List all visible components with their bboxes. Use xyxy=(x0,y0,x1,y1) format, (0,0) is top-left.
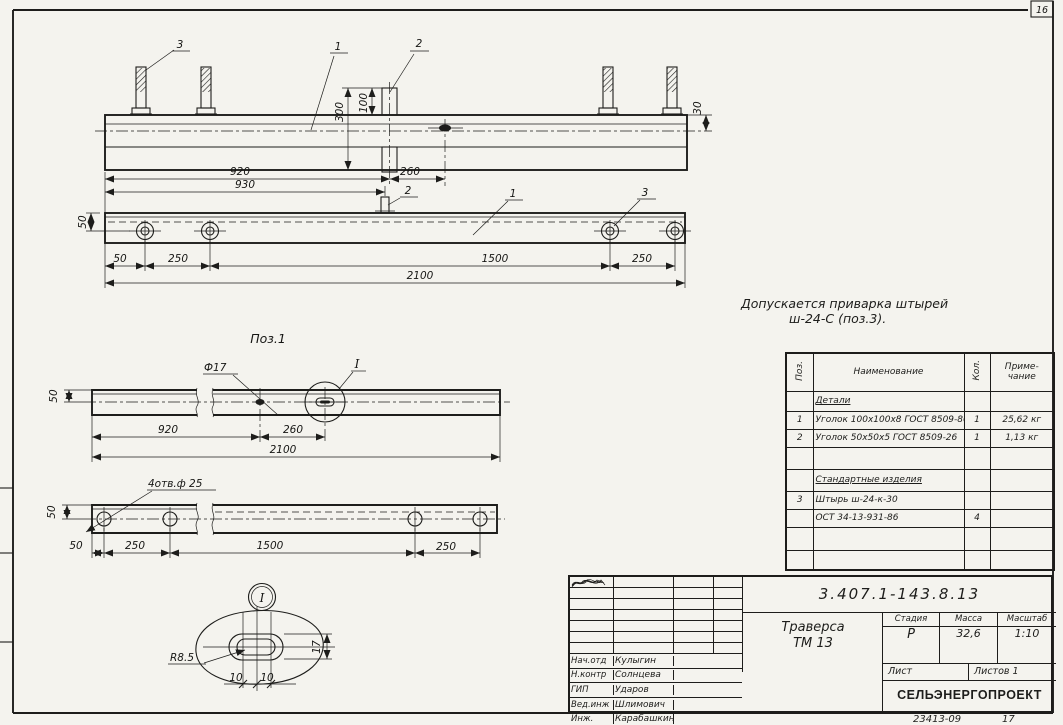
sig-role: ГИП xyxy=(570,685,614,695)
col-name: Наименование xyxy=(813,353,964,391)
sheet-row: Лист Листов 1 xyxy=(882,664,1056,681)
dim-10-right: 10 xyxy=(260,672,274,684)
part-note xyxy=(990,491,1054,509)
doc-number: 3.407.1-143.8.13 xyxy=(742,577,1056,613)
stage-label: Стадия xyxy=(883,612,940,627)
callout-pin: 3 xyxy=(177,39,184,51)
sig-name: Ударов xyxy=(614,685,674,695)
sheets-label: Листов 1 xyxy=(969,664,1019,680)
detail-i-view: I R8.5 17 10 10 xyxy=(168,584,335,692)
part-qty: 1 xyxy=(964,411,990,429)
col-pos: Поз. xyxy=(786,353,813,391)
dim-920: 920 xyxy=(230,166,250,178)
drawing-title: Траверса ТМ 13 xyxy=(742,612,883,672)
footer-sheet-number: 17 xyxy=(1002,714,1015,725)
sig-name: Карабашкин xyxy=(614,714,674,724)
sheet-corner-number: 16 xyxy=(1036,5,1048,16)
pin-1 xyxy=(130,67,152,114)
drawing-sheet: 16 xyxy=(0,0,1063,725)
dim-2100: 2100 xyxy=(407,270,434,282)
dim-250-right: 250 xyxy=(436,541,456,553)
holes-view: 4отв.ф 25 50 50 250 1500 250 xyxy=(46,478,505,558)
table-row xyxy=(786,527,1054,550)
bracket-part xyxy=(381,197,389,213)
section-standard: Стандартные изделия xyxy=(813,469,964,491)
part-name: Уголок 100x100x8 ГОСТ 8509-86 xyxy=(813,411,964,429)
signature-row: Инж. Карабашкин xyxy=(570,712,742,725)
sig-name: Солнцева xyxy=(614,670,674,680)
scale-value: 1:10 xyxy=(998,627,1056,664)
part-pos xyxy=(786,509,813,527)
stage-value: Р xyxy=(883,627,940,664)
dim-250-right: 250 xyxy=(632,253,652,265)
pin-2 xyxy=(195,67,217,114)
part-name: Уголок 50x50x5 ГОСТ 8509-26 xyxy=(813,429,964,447)
signature-row: Н.контр Солнцева xyxy=(570,669,742,684)
detail-ref: I xyxy=(259,591,265,605)
callout-beam: 1 xyxy=(335,41,342,53)
dim-10-left: 10 xyxy=(229,672,243,684)
table-row: Стандартные изделия xyxy=(786,469,1054,491)
weld-note: Допускается приварка штырей ш-24-С (поз.… xyxy=(741,296,1053,326)
title-block: Нач.отд Кулыгин Н.контр Солнцева ГИП Уда… xyxy=(568,575,1053,713)
note-line1: Допускается приварка штырей xyxy=(741,296,1053,311)
radius-label: R8.5 xyxy=(170,652,194,664)
mass-value: 32,6 xyxy=(940,627,998,664)
table-row: 3 Штырь ш-24-к-30 xyxy=(786,491,1054,509)
callout-plate: 2 xyxy=(416,38,423,50)
pos1-title: Поз.1 xyxy=(250,331,286,346)
dim-930: 930 xyxy=(235,179,255,191)
col-qty: Кол. xyxy=(964,353,990,391)
scale-label: Масштаб xyxy=(998,612,1056,627)
hole-washer xyxy=(594,220,626,242)
table-row xyxy=(786,550,1054,570)
bolt xyxy=(428,119,463,186)
sheet-label: Лист xyxy=(883,664,969,680)
hole-label: Ф17 xyxy=(204,362,227,374)
sig-name: Кулыгин xyxy=(614,656,674,666)
elevation-view: 3 1 2 920 260 300 100 30 xyxy=(95,38,712,186)
stage-mass-scale: Стадия Масса Масштаб Р 32,6 1:10 xyxy=(882,612,1056,664)
dim-17: 17 xyxy=(311,640,323,654)
signature-row: Нач.отд Кулыгин xyxy=(570,654,742,669)
dim-30: 30 xyxy=(692,101,704,115)
table-row: Детали xyxy=(786,391,1054,411)
sig-role: Инж. xyxy=(570,714,614,724)
dim-1500: 1500 xyxy=(482,253,509,265)
dim-300: 300 xyxy=(334,102,346,122)
dim-100: 100 xyxy=(358,93,370,113)
table-row xyxy=(786,447,1054,469)
callout-beam: 1 xyxy=(510,188,517,200)
dim-250-left: 250 xyxy=(168,253,188,265)
pin-3 xyxy=(597,67,619,114)
sig-name: Шлимович xyxy=(614,700,674,710)
callout-plate: 2 xyxy=(405,185,412,197)
part-pos: 3 xyxy=(786,491,813,509)
dim-50: 50 xyxy=(69,540,83,552)
dim-50-vert: 50 xyxy=(77,215,89,229)
dim-920: 920 xyxy=(158,424,178,436)
pos1-view: Поз.1 Ф17 I 920 260 2100 50 xyxy=(48,331,510,462)
detail-ref: I xyxy=(354,357,360,371)
part-note: 1,13 кг xyxy=(990,429,1054,447)
pin-4 xyxy=(661,67,683,114)
col-note: Приме-чание xyxy=(990,353,1054,391)
footer-doc-number: 23413-09 xyxy=(913,714,961,725)
dim-50: 50 xyxy=(113,253,127,265)
part-name: ОСТ 34-13-931-86 xyxy=(813,509,964,527)
mass-label: Масса xyxy=(940,612,998,627)
dim-260: 260 xyxy=(283,424,303,436)
section-details: Детали xyxy=(813,391,964,411)
hole-washer xyxy=(659,220,691,242)
dim-50-vert: 50 xyxy=(48,389,60,403)
note-line2: ш-24-С (поз.3). xyxy=(789,311,1053,326)
table-row: ОСТ 34-13-931-86 4 xyxy=(786,509,1054,527)
holes-label: 4отв.ф 25 xyxy=(148,478,203,490)
sig-role: Вед.инж xyxy=(570,700,614,710)
plan-view: 2 1 3 930 50 50 250 1500 250 2100 xyxy=(77,179,691,288)
table-row: 1 Уголок 100x100x8 ГОСТ 8509-86 1 25,62 … xyxy=(786,411,1054,429)
sig-role: Нач.отд xyxy=(570,656,614,666)
dim-260: 260 xyxy=(400,166,420,178)
dim-250-left: 250 xyxy=(125,540,145,552)
dim-2100: 2100 xyxy=(270,444,297,456)
hole-washer xyxy=(194,220,226,242)
signature-grid: Нач.отд Кулыгин Н.контр Солнцева ГИП Уда… xyxy=(570,577,742,711)
part-name: Штырь ш-24-к-30 xyxy=(813,491,964,509)
callout-pin: 3 xyxy=(642,187,649,199)
table-row: 2 Уголок 50x50x5 ГОСТ 8509-26 1 1,13 кг xyxy=(786,429,1054,447)
part-qty xyxy=(964,491,990,509)
parts-table: Поз. Наименование Кол. Приме-чание Детал… xyxy=(785,352,1055,571)
dim-1500: 1500 xyxy=(257,540,284,552)
part-qty: 1 xyxy=(964,429,990,447)
signature-row: Вед.инж Шлимович xyxy=(570,698,742,713)
part-note: 25,62 кг xyxy=(990,411,1054,429)
part-note xyxy=(990,509,1054,527)
sig-role: Н.контр xyxy=(570,670,614,680)
part-qty: 4 xyxy=(964,509,990,527)
organization: СЕЛЬЭНЕРГОПРОЕКТ xyxy=(882,680,1056,711)
part-pos: 1 xyxy=(786,411,813,429)
signature-row: ГИП Ударов xyxy=(570,683,742,698)
part-pos: 2 xyxy=(786,429,813,447)
hole-washer xyxy=(129,220,161,242)
dim-50-vert: 50 xyxy=(46,505,58,519)
